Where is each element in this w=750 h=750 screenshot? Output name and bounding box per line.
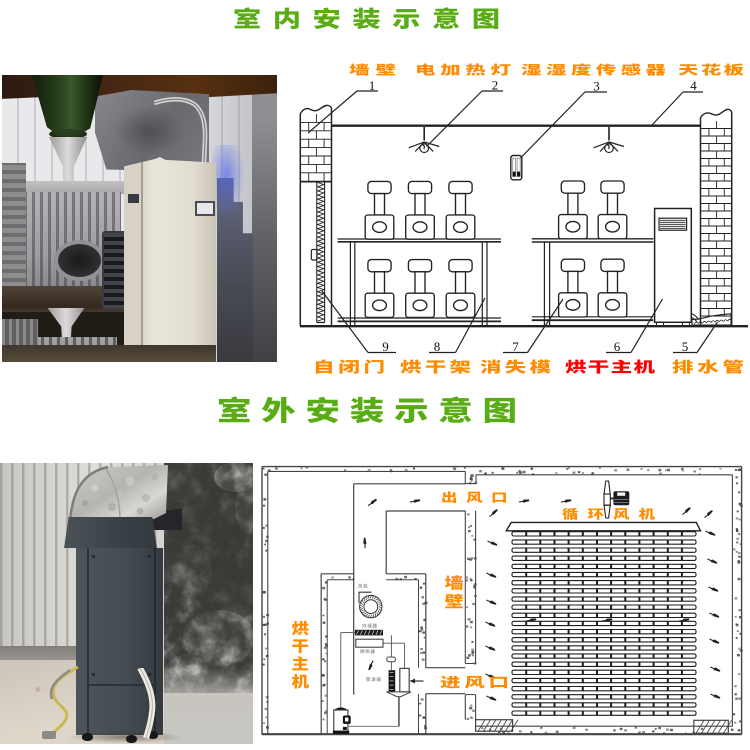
svg-text:5: 5 <box>682 339 689 354</box>
svg-text:7: 7 <box>512 339 519 354</box>
svg-text:2: 2 <box>492 78 499 93</box>
svg-text:1: 1 <box>369 78 376 93</box>
svg-text:8: 8 <box>434 339 441 354</box>
svg-text:4: 4 <box>690 78 697 93</box>
svg-text:6: 6 <box>614 339 621 354</box>
svg-text:9: 9 <box>382 339 389 354</box>
svg-text:3: 3 <box>593 79 600 94</box>
